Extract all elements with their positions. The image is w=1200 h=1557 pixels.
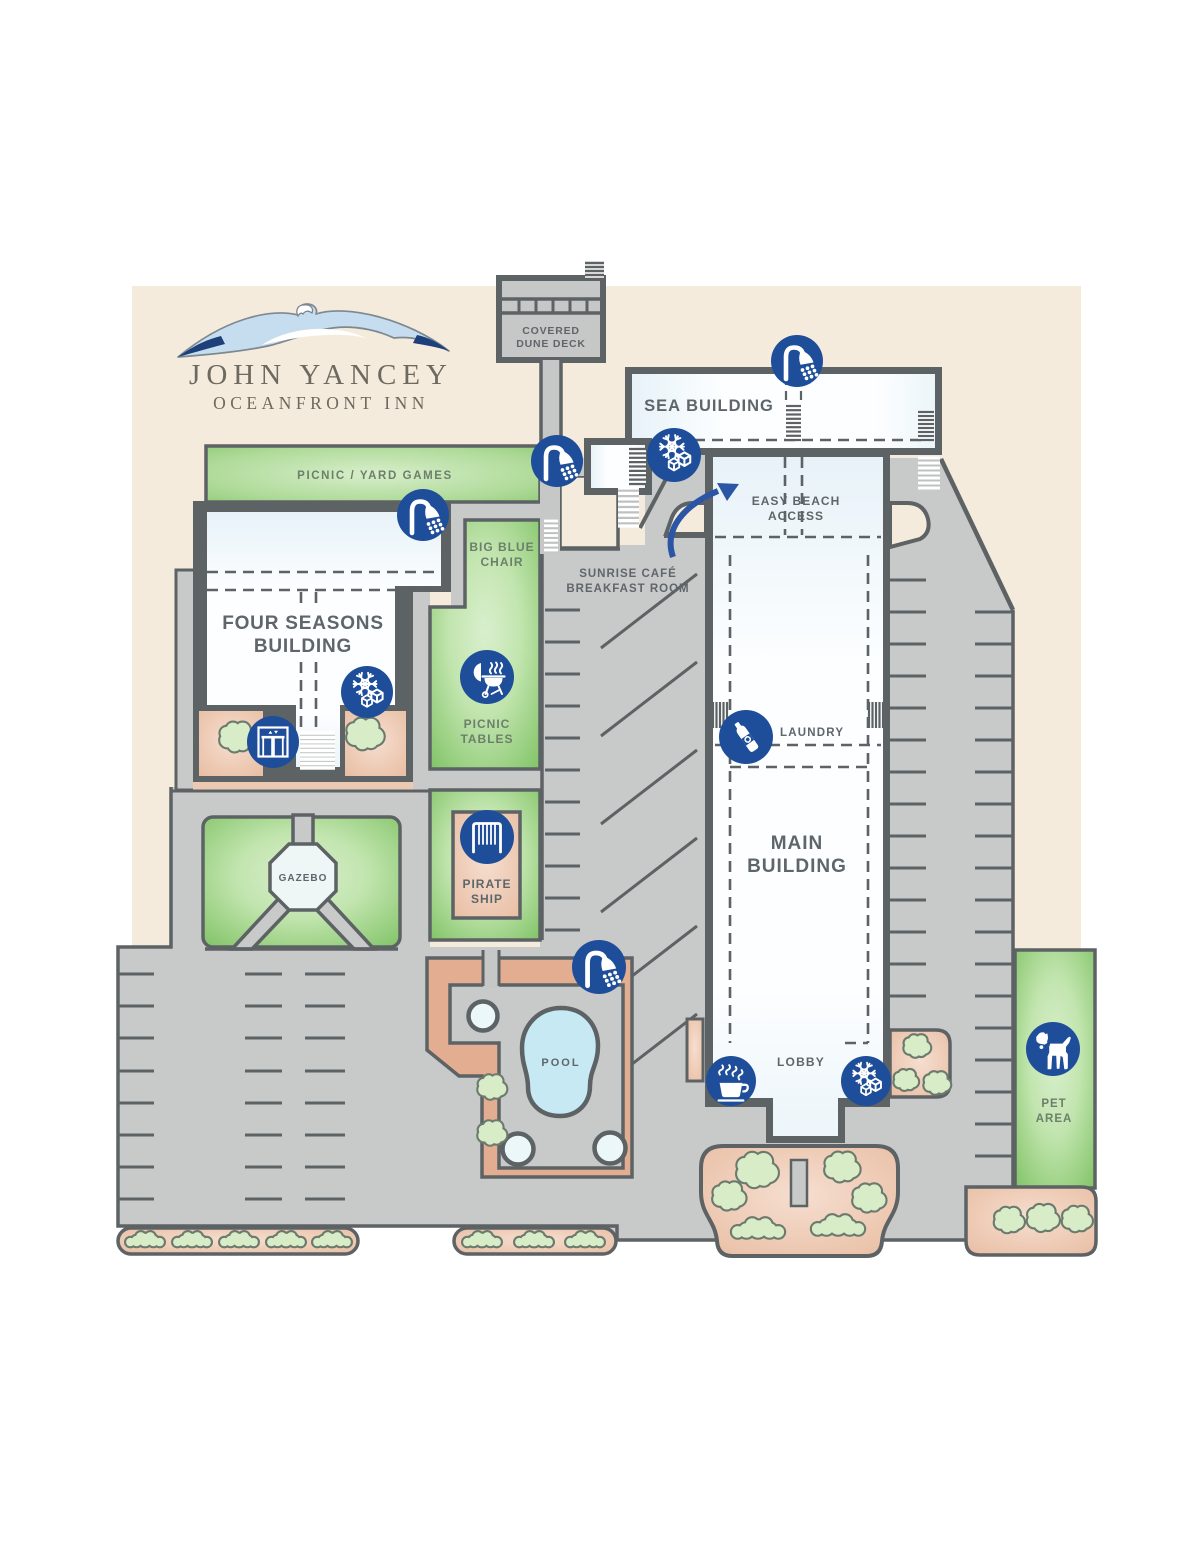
svg-text:EASY BEACH: EASY BEACH (752, 494, 840, 508)
svg-text:SHIP: SHIP (471, 892, 503, 906)
svg-text:PIRATE: PIRATE (462, 877, 511, 891)
svg-text:BUILDING: BUILDING (747, 856, 847, 877)
svg-text:PET: PET (1041, 1098, 1066, 1110)
svg-text:SEA BUILDING: SEA BUILDING (644, 397, 774, 415)
svg-text:CHAIR: CHAIR (481, 555, 524, 569)
svg-text:MAIN: MAIN (771, 833, 824, 854)
svg-text:LOBBY: LOBBY (777, 1055, 825, 1069)
svg-text:BIG BLUE: BIG BLUE (469, 540, 534, 554)
svg-text:PICNIC / YARD GAMES: PICNIC / YARD GAMES (297, 470, 453, 482)
svg-text:SUNRISE CAFÉ: SUNRISE CAFÉ (579, 567, 677, 580)
svg-text:FOUR SEASONS: FOUR SEASONS (222, 613, 384, 634)
svg-text:COVERED: COVERED (522, 325, 580, 337)
svg-text:GAZEBO: GAZEBO (279, 873, 328, 884)
svg-text:DUNE DECK: DUNE DECK (516, 338, 586, 350)
svg-text:BREAKFAST ROOM: BREAKFAST ROOM (566, 583, 689, 595)
svg-text:ACCESS: ACCESS (768, 509, 824, 523)
svg-text:JOHN YANCEY: JOHN YANCEY (189, 359, 453, 391)
svg-text:OCEANFRONT INN: OCEANFRONT INN (213, 393, 429, 413)
svg-text:POOL: POOL (541, 1057, 580, 1069)
svg-text:LAUNDRY: LAUNDRY (780, 727, 844, 739)
svg-text:AREA: AREA (1036, 1113, 1073, 1125)
svg-text:BUILDING: BUILDING (254, 636, 352, 657)
svg-text:PICNIC: PICNIC (464, 717, 511, 731)
svg-text:TABLES: TABLES (460, 732, 513, 746)
